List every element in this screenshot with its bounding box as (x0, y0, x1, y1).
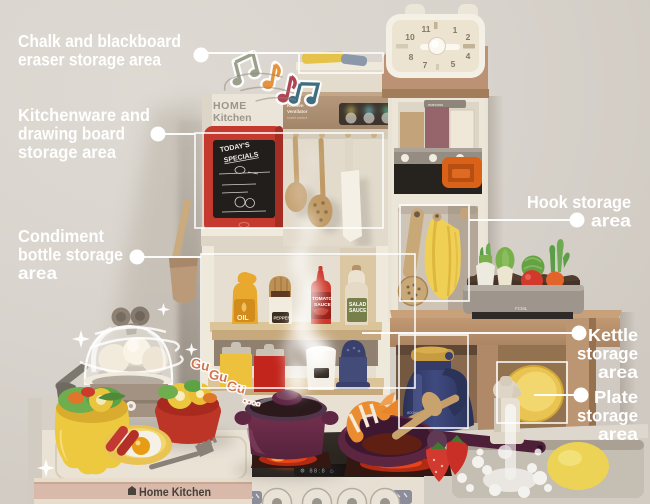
svg-text:Kitchen: Kitchen (213, 112, 252, 124)
svg-text:PEPPER: PEPPER (274, 316, 291, 321)
svg-text:Plate: Plate (594, 387, 638, 407)
svg-text:FCML: FCML (515, 306, 528, 311)
svg-text:area: area (591, 211, 631, 231)
svg-text:Home Kitchen: Home Kitchen (139, 485, 211, 499)
svg-text:SAUCE: SAUCE (349, 308, 367, 314)
svg-text:drawing board: drawing board (18, 124, 125, 144)
svg-text:HOME: HOME (213, 100, 247, 112)
svg-text:2: 2 (466, 32, 471, 42)
svg-text:area: area (598, 362, 638, 382)
svg-text:Kitchenware and: Kitchenware and (18, 105, 150, 125)
svg-text:storage: storage (577, 406, 638, 426)
svg-text:5: 5 (451, 59, 456, 69)
svg-text:area: area (598, 424, 638, 444)
svg-text:11: 11 (422, 24, 431, 34)
svg-text:Ventilator: Ventilator (287, 109, 308, 114)
svg-text:storage area: storage area (18, 142, 116, 162)
svg-text:Condiment: Condiment (18, 226, 104, 246)
svg-text:Chalk and blackboard: Chalk and blackboard (18, 31, 181, 51)
svg-text:eraser storage area: eraser storage area (18, 50, 161, 70)
svg-text:OIL: OIL (237, 315, 249, 322)
svg-text:storage: storage (577, 344, 638, 364)
svg-text:bottle storage: bottle storage (18, 245, 123, 265)
svg-text:10: 10 (405, 32, 415, 42)
svg-text:7: 7 (423, 60, 428, 70)
svg-text:Hook storage: Hook storage (527, 192, 631, 212)
svg-text:4: 4 (466, 51, 471, 61)
svg-text:8: 8 (409, 52, 414, 62)
svg-text:Kettle: Kettle (588, 325, 638, 345)
svg-text:1: 1 (453, 25, 458, 35)
svg-text:area: area (18, 263, 57, 283)
svg-text:smart control: smart control (287, 116, 307, 120)
svg-text:marcoss: marcoss (428, 102, 443, 107)
